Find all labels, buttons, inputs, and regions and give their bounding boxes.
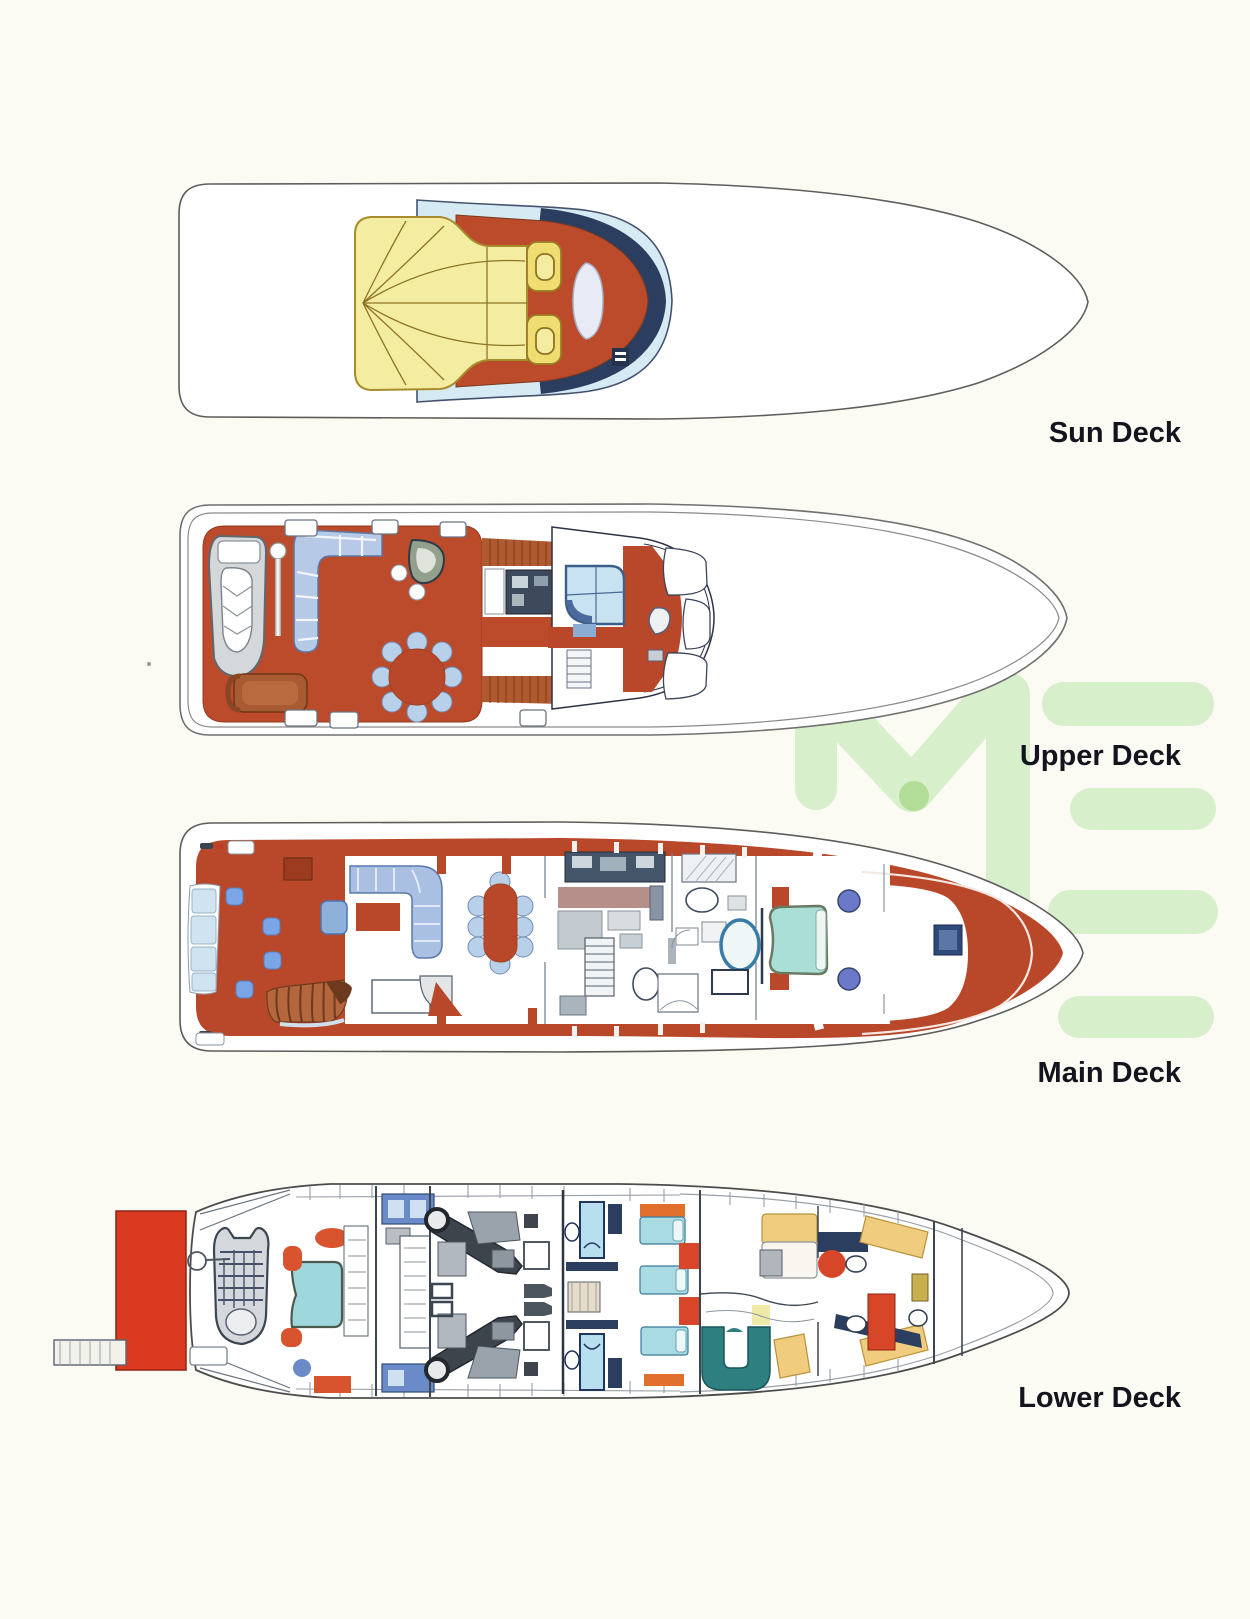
svg-text:Lower Deck: Lower Deck	[1018, 1382, 1182, 1414]
svg-text:Main Deck: Main Deck	[1038, 1057, 1182, 1089]
svg-text:Sun Deck: Sun Deck	[1049, 417, 1182, 449]
svg-text:Upper Deck: Upper Deck	[1020, 740, 1182, 772]
